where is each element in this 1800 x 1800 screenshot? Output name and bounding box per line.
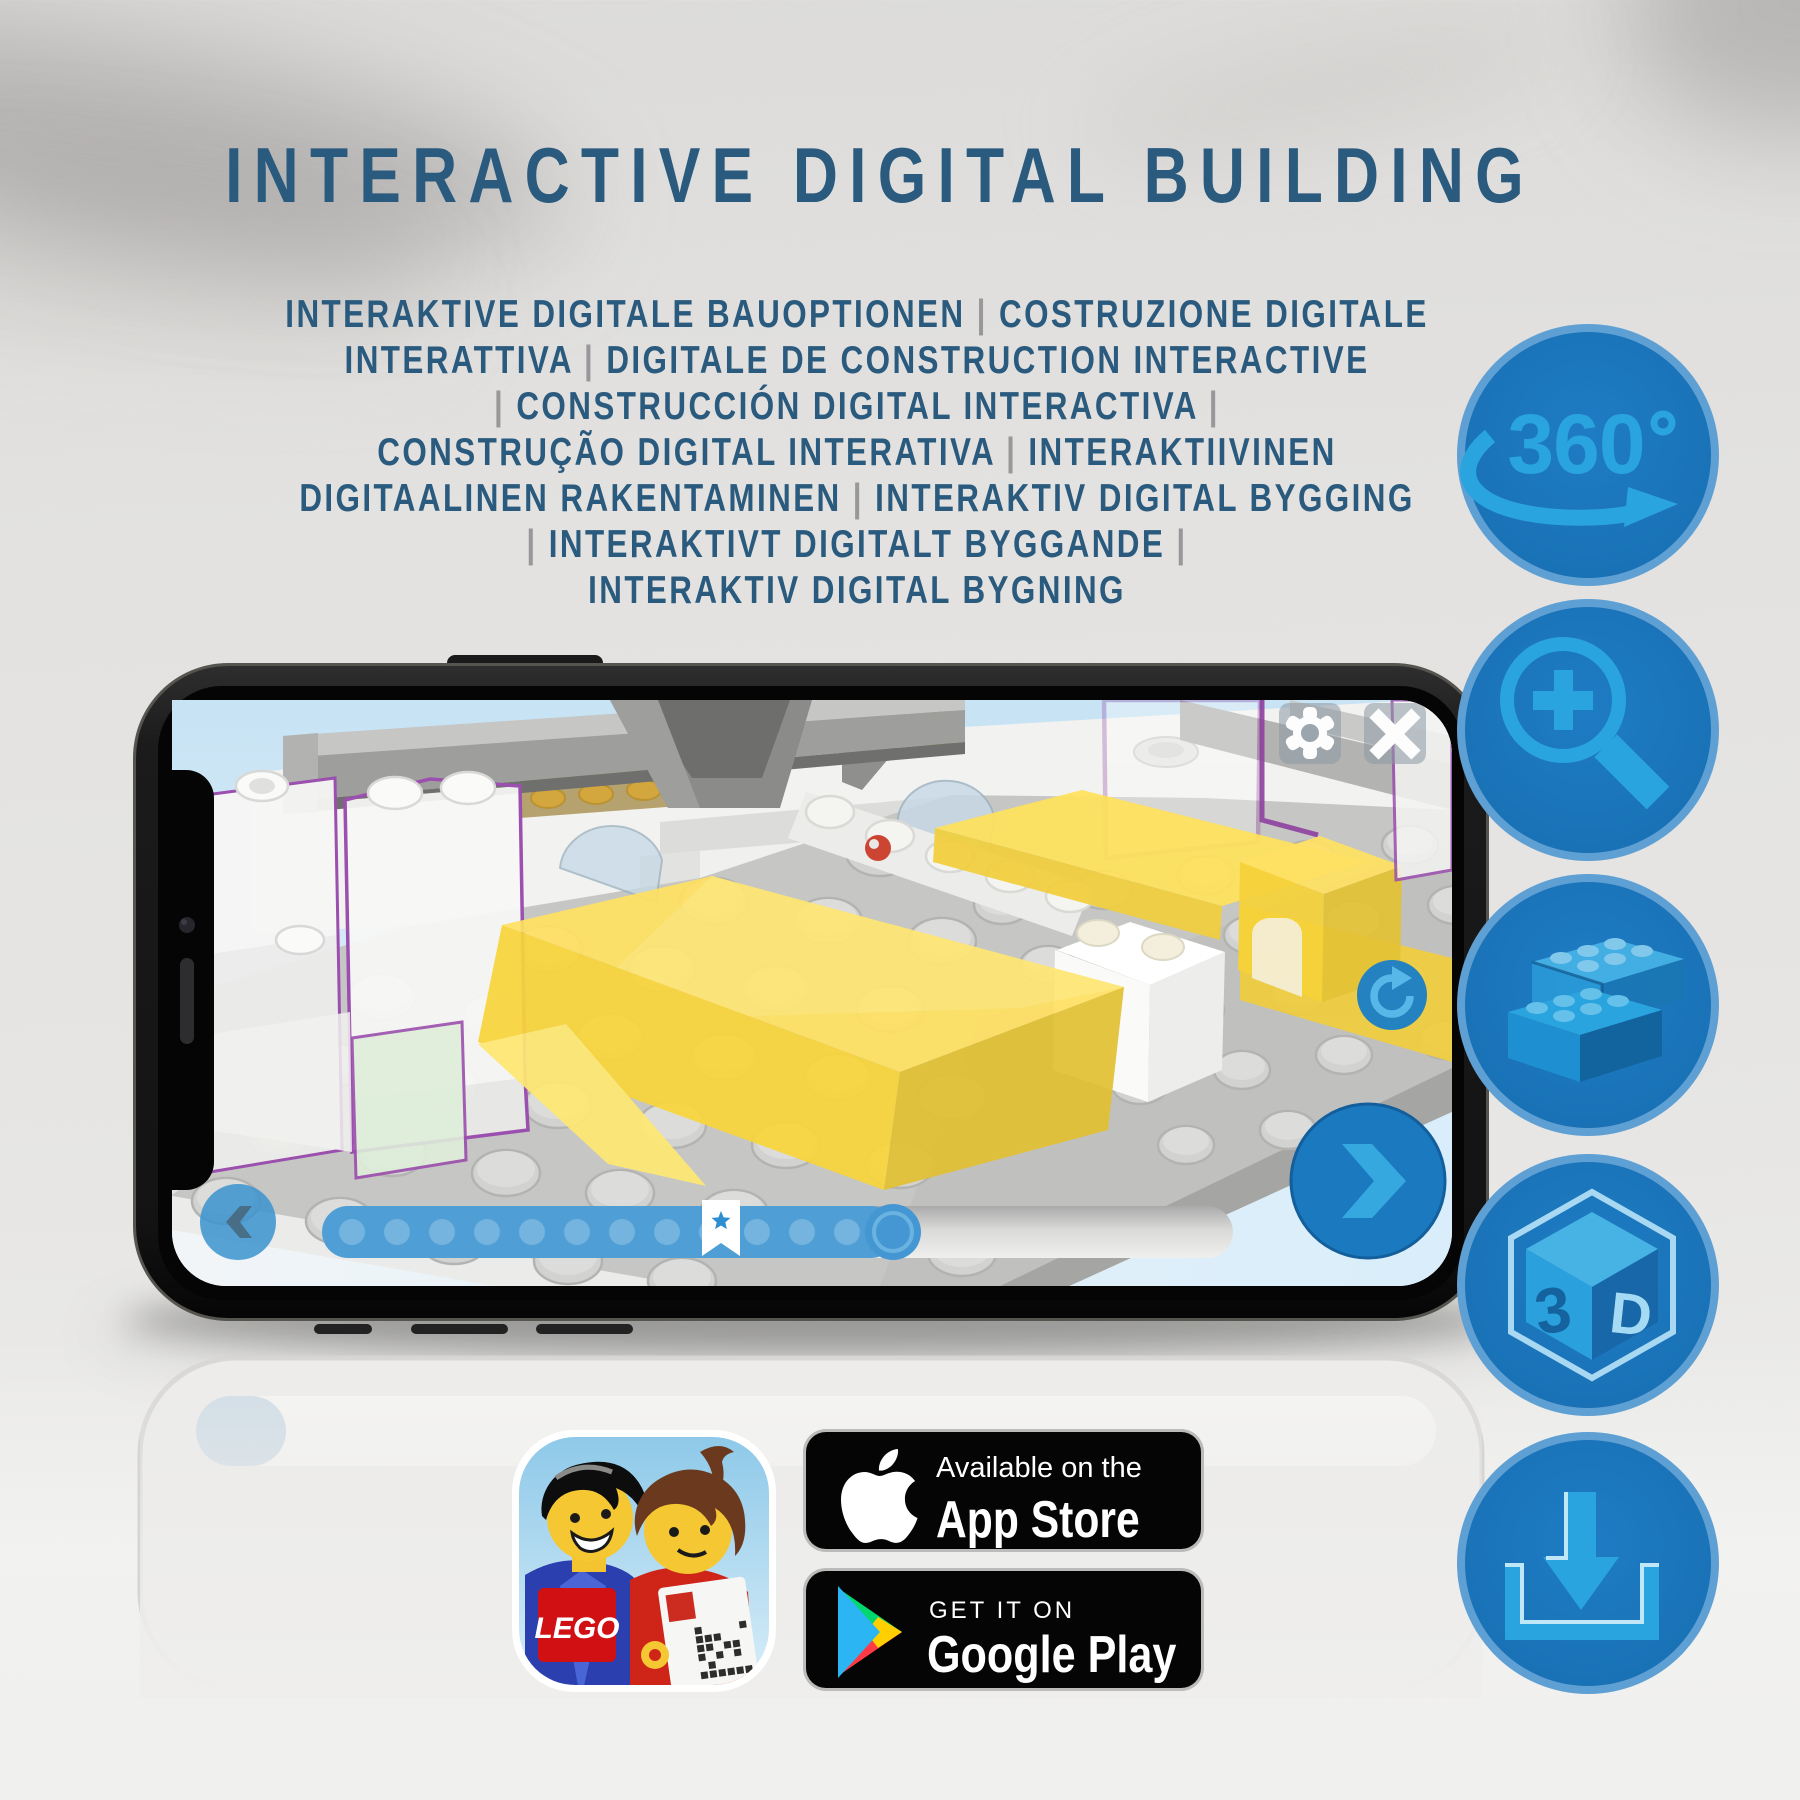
svg-text:360: 360 [1507, 397, 1644, 491]
svg-text:D: D [1607, 1280, 1655, 1349]
svg-text:App Store: App Store [936, 1491, 1140, 1549]
svg-text:GET IT ON: GET IT ON [929, 1597, 1075, 1624]
svg-text:Google Play: Google Play [927, 1626, 1177, 1684]
svg-text:Available on the: Available on the [936, 1452, 1142, 1484]
svg-text:LEGO: LEGO [534, 1612, 619, 1645]
